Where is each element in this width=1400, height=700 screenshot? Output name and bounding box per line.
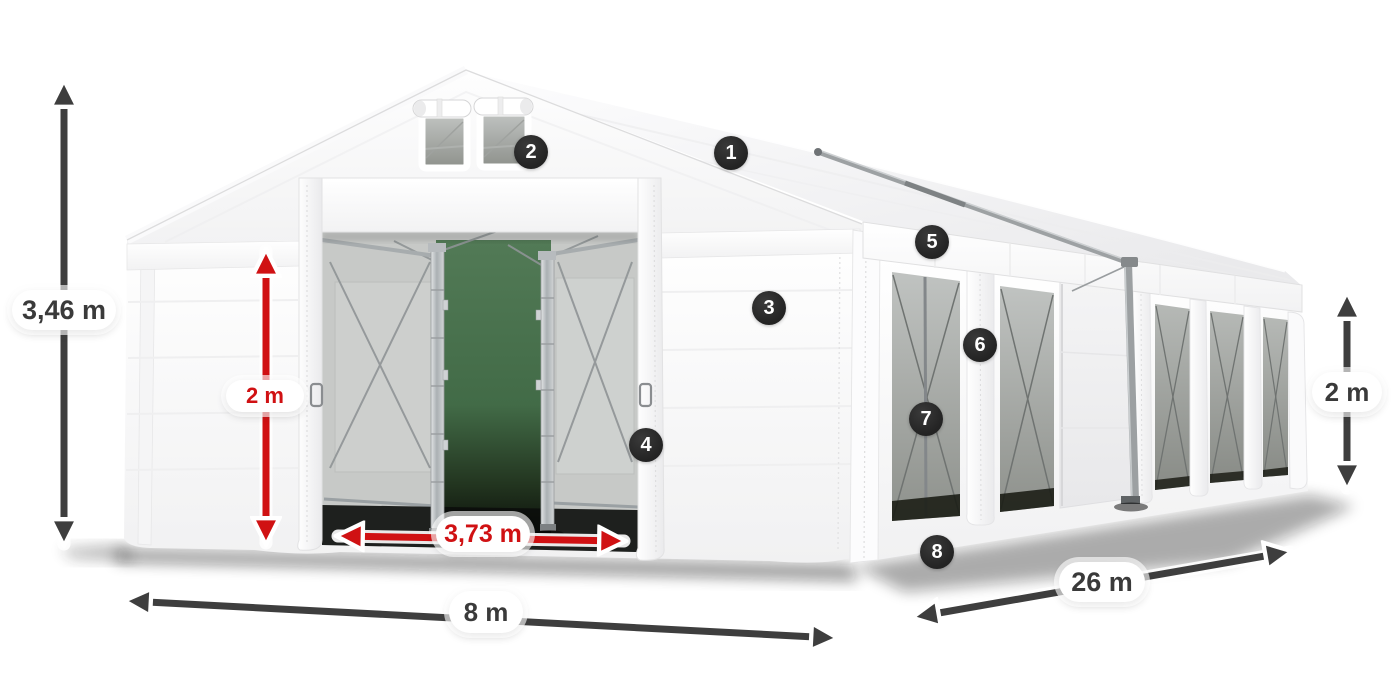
marker-7: 7 [909,402,943,436]
dimension-label-door-height: 2 m [226,380,304,412]
tent-illustration [0,0,1400,700]
marker-4: 4 [629,428,663,462]
door-header-beam [299,178,661,232]
dimension-label-front-width: 8 m [449,591,523,633]
marker-1: 1 [714,136,748,170]
gable-window-left [422,115,467,168]
eave-band-front-left [127,241,299,270]
dimension-label-side-length: 26 m [1059,562,1145,602]
vent-roll-right [474,97,533,115]
marker-3: 3 [752,291,786,325]
vent-roll-left [413,99,471,117]
tent-dimensions-diagram: 3,46 m 2 m 3,73 m 8 m 26 m 2 m 1 2 3 4 5… [0,0,1400,700]
marker-2: 2 [514,135,548,169]
door-see-through [436,240,551,540]
side-sliding-panel [1060,281,1133,508]
eave-band-front-right [661,229,860,258]
door-opening-interior [322,230,638,552]
dimension-label-total-height: 3,46 m [12,290,116,330]
door-pillar-right [636,178,664,560]
marker-6: 6 [963,328,997,362]
marker-8: 8 [920,535,954,569]
marker-5: 5 [915,225,949,259]
door-pillar-left [298,178,322,550]
side-wall-end [1288,312,1307,489]
dimension-label-door-width: 3,73 m [436,516,530,552]
dimension-label-wall-height: 2 m [1312,372,1382,412]
interior-panel-right [556,278,634,474]
